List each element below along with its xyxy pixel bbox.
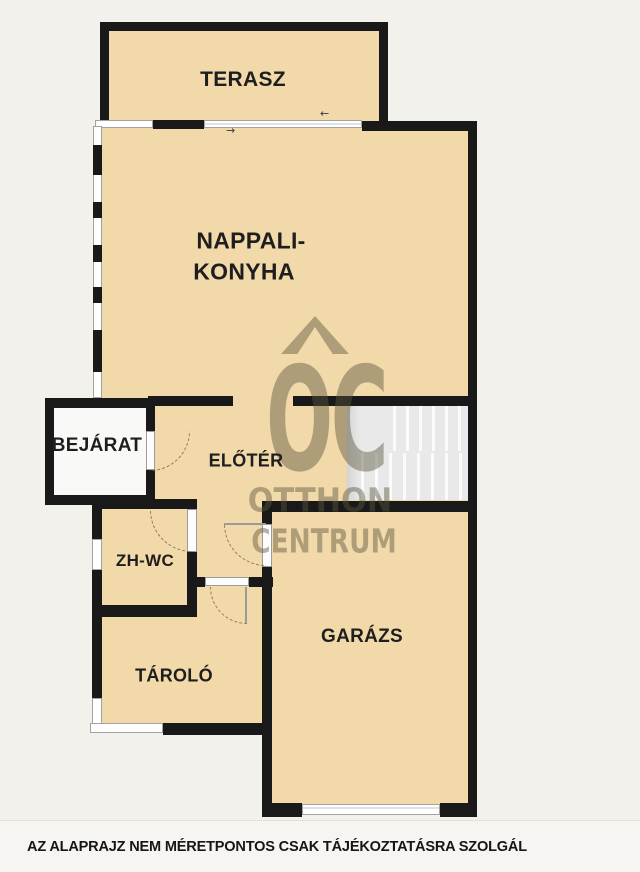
tarolo-south-window	[90, 723, 163, 733]
garazs-bottom-wall-right	[440, 803, 477, 817]
zhwc-bottom-wall	[92, 605, 197, 617]
terasz-window-left	[95, 120, 153, 128]
east-outer-wall	[468, 121, 477, 817]
zhwc-top-wall	[92, 499, 197, 509]
terasz-left-wall	[100, 22, 109, 126]
slide-arrow-right-icon: →	[226, 125, 235, 136]
nappali-label-line1: NAPPALI-	[196, 228, 305, 255]
bejarat-right-wall-upper	[146, 398, 155, 431]
watermark-line2: CENTRUM	[251, 522, 397, 561]
tarolo-left-wall	[92, 617, 102, 698]
garazs-bottom-wall-left	[262, 803, 302, 817]
zhwc-left-wall-upper	[92, 509, 102, 539]
nappali-west-wall-dash-5	[93, 330, 102, 372]
tarolo-west-window	[92, 698, 102, 724]
corridor-south-wall-left	[187, 577, 205, 587]
nappali-west-wall-dash-2	[93, 202, 102, 218]
terasz-band-wall-segment	[153, 120, 204, 129]
nappali-label-line2: KONYHA	[193, 259, 294, 286]
terasz-top-wall	[100, 22, 388, 31]
nappali-top-wall	[362, 121, 477, 131]
terasz-label: TERASZ	[200, 68, 286, 92]
tarolo-label: TÁROLÓ	[135, 666, 213, 687]
bejarat-label: BEJÁRAT	[52, 435, 142, 457]
nappali-west-wall-dash-4	[93, 287, 102, 303]
eloter-label: ELŐTÉR	[209, 451, 284, 472]
bejarat-top-wall	[45, 398, 155, 408]
garage-door-opening	[302, 804, 440, 815]
floor-plan: ← → OC OTTHON CENTRUM TERASZ NAPPALI- KO…	[0, 0, 640, 872]
garazs-label: GARÁZS	[321, 626, 403, 648]
nappali-west-wall-dash-1	[93, 145, 102, 175]
tarolo-door-opening	[205, 577, 249, 586]
zhwc-label: ZH-WC	[116, 551, 174, 571]
garazs-left-wall-lower	[262, 567, 272, 815]
nappali-south-wall-left	[148, 396, 233, 406]
watermark-line1: OTTHON	[248, 481, 393, 520]
tarolo-bottom-wall	[163, 723, 265, 735]
zhwc-window	[92, 539, 102, 570]
staircase-upper-steps	[383, 405, 468, 451]
nappali-west-wall-dash-3	[93, 245, 102, 262]
disclaimer-text: AZ ALAPRAJZ NEM MÉRETPONTOS CSAK TÁJÉKOZ…	[27, 838, 527, 855]
terasz-right-wall	[379, 22, 388, 126]
slide-arrow-left-icon: ←	[320, 108, 329, 119]
watermark-logo: OC	[266, 338, 386, 505]
